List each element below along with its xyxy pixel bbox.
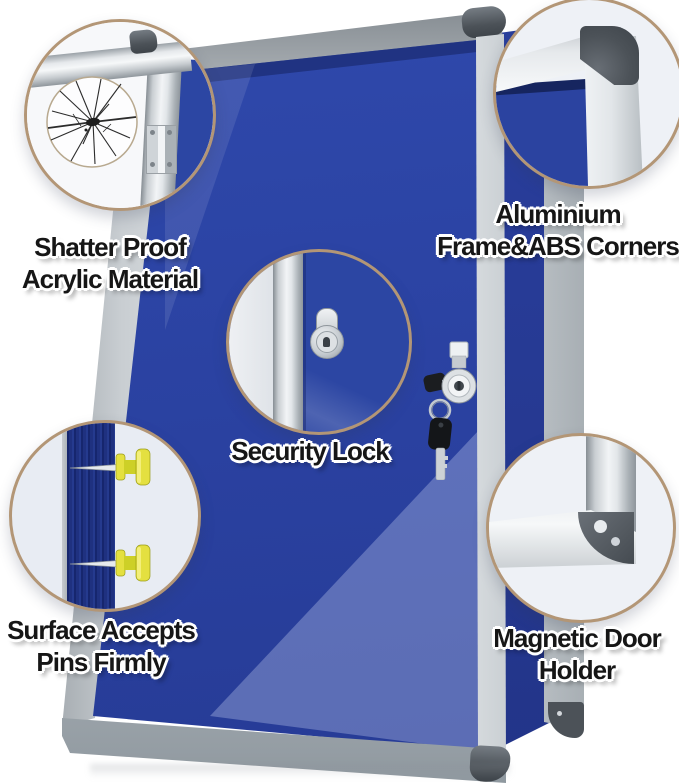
callout-label-shatterproof: Shatter Proof Acrylic Material xyxy=(0,231,225,295)
label-line: Surface Accepts xyxy=(0,614,216,646)
pushpin-icon xyxy=(68,445,154,489)
callout-label-magnetic-holder: Magnetic Door Holder xyxy=(447,622,679,686)
callout-label-pins: Surface Accepts Pins Firmly xyxy=(0,614,216,678)
door-edge-rail xyxy=(273,252,303,432)
mini-corner-cap xyxy=(129,29,158,55)
label-line: Security Lock xyxy=(195,435,425,467)
callout-circle-shatterproof xyxy=(24,19,216,211)
hinge-screw xyxy=(150,130,155,135)
label-line: Holder xyxy=(447,654,679,686)
door-edge-pale xyxy=(229,252,273,432)
hinge-screw xyxy=(167,130,172,135)
felt-inside-frame xyxy=(496,86,588,186)
label-line: Aluminium xyxy=(428,198,679,230)
callout-circle-security-lock xyxy=(226,249,412,435)
lock-cylinder-icon xyxy=(310,325,344,359)
corner-screw-hole xyxy=(557,711,562,716)
floor-reflection xyxy=(90,764,510,778)
crack-icon xyxy=(43,74,139,170)
holder-hole-small xyxy=(611,537,620,546)
lock-and-keys-icon xyxy=(416,330,486,480)
callout-circle-magnetic-holder xyxy=(486,433,676,623)
pushpin-icon xyxy=(68,541,154,585)
callout-circle-frame-corners xyxy=(493,0,679,189)
callout-circle-pins xyxy=(9,420,201,612)
label-line: Pins Firmly xyxy=(0,646,216,678)
holder-hole-large xyxy=(594,520,607,533)
product-infographic: Shatter Proof Acrylic Material Aluminium… xyxy=(0,0,679,784)
callout-label-frame-corners: Aluminium Frame&ABS Corners xyxy=(428,198,679,262)
rail-seam xyxy=(303,252,306,432)
hinge-screw xyxy=(167,162,172,167)
cabinet-bottom-corner-cap xyxy=(548,702,584,738)
label-line: Magnetic Door xyxy=(447,622,679,654)
hinge-screw xyxy=(150,162,155,167)
label-line: Frame&ABS Corners xyxy=(428,230,679,262)
callout-label-security-lock: Security Lock xyxy=(195,435,425,467)
label-line: Shatter Proof xyxy=(0,231,225,263)
label-line: Acrylic Material xyxy=(0,263,225,295)
hinge-icon xyxy=(146,125,177,174)
lock-keyhole xyxy=(323,337,330,347)
